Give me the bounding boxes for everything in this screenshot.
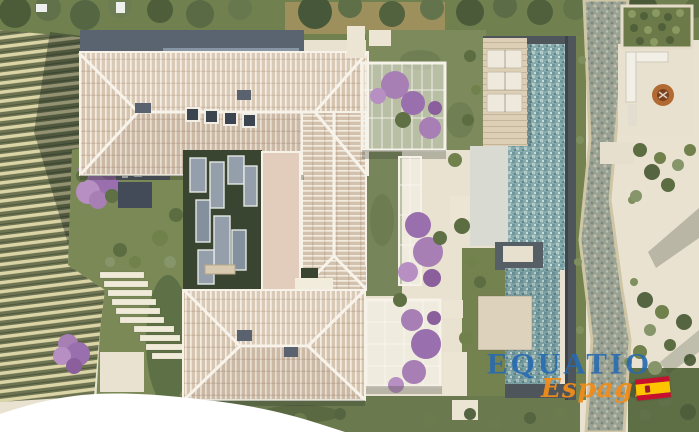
guest-house-roof: [183, 290, 365, 406]
villa-aerial-photo: EQUATIO Espagne: [0, 0, 699, 432]
pergola-north: [362, 63, 446, 159]
roof-vent: [284, 347, 298, 357]
stream-crossing: [600, 142, 634, 164]
roof-vent: [237, 90, 251, 100]
pergola-south: [366, 293, 442, 394]
aerial-render-canvas: [0, 0, 699, 432]
pool-platform: [478, 296, 532, 350]
lounge-terrace: [618, 44, 694, 136]
garden-table: [205, 265, 235, 274]
pool-water-upper: [527, 44, 567, 146]
roof-vent: [237, 330, 252, 341]
roof-vent: [135, 103, 151, 113]
flat-roof-link: [262, 152, 300, 292]
vegetable-garden: [622, 6, 692, 48]
